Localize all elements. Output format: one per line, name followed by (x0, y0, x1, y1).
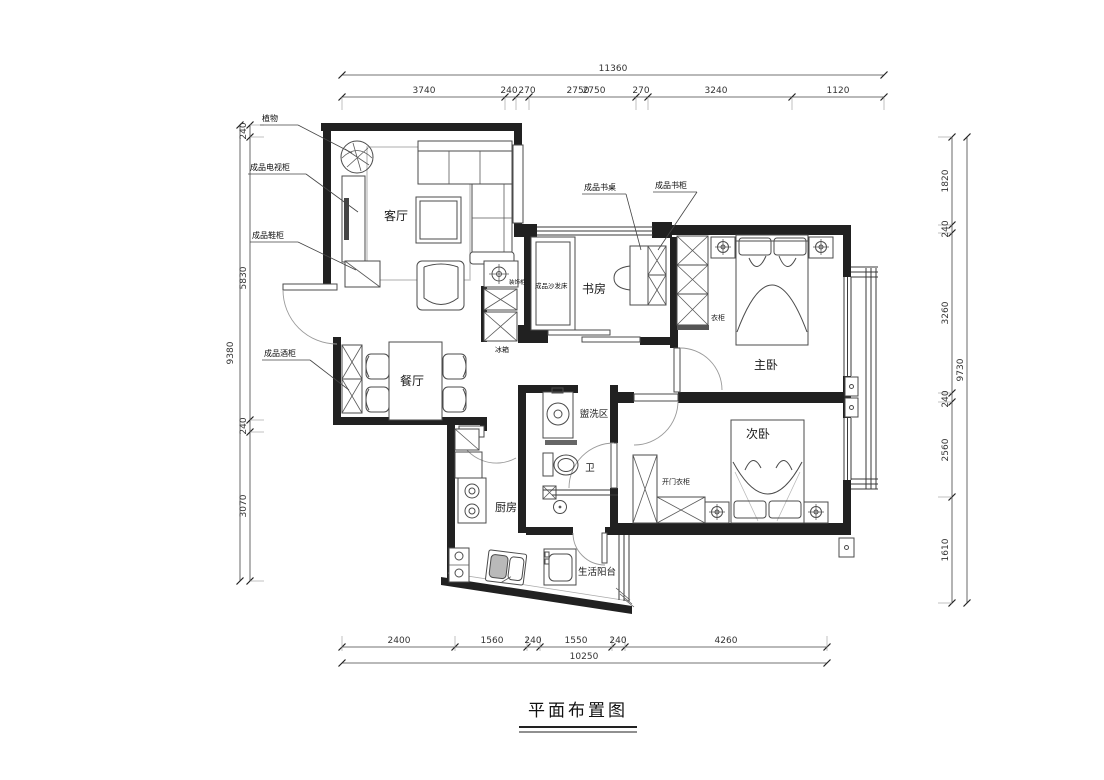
fridge (484, 312, 517, 341)
label-wardrobe: 衣柜 (711, 313, 725, 322)
dim-left-ticks (247, 122, 265, 585)
kitchen-sink (485, 550, 526, 585)
side-table (513, 145, 523, 223)
room-label-second: 次卧 (746, 427, 770, 441)
dimension-chain-bottom: 2400 1560 240 1550 240 4260 10250 (339, 636, 831, 667)
callout-tv-cabinet: 成品电视柜 (250, 162, 290, 172)
wet-zone-partition (543, 486, 618, 514)
dimension-chain-top: 11360 3740 240 270 2750 2750 270 3240 11… (339, 64, 888, 110)
toilet (543, 453, 578, 476)
callout-shoe-cabinet: 成品鞋柜 (252, 230, 284, 240)
drawing-title: 平面布置图 (528, 701, 628, 721)
room-label-living: 客厅 (384, 208, 408, 223)
coffee-table (416, 197, 461, 243)
dim-right-ticks (938, 134, 956, 607)
hall-cabinet (484, 289, 517, 310)
callout-desk: 成品书桌 (584, 182, 616, 192)
dim-left-seg: 5830 (239, 266, 249, 289)
label-sofa-bed: 成品沙发床 (535, 281, 568, 290)
master-door (674, 348, 722, 392)
entry-door (283, 284, 337, 344)
master-bed (736, 235, 808, 345)
shelf (545, 440, 577, 445)
dim-top-seg: 3740 (413, 86, 436, 96)
label-door-wardrobe: 开门衣柜 (662, 477, 690, 486)
second-bedroom-door (634, 394, 678, 445)
floor-plan-drawing: 11360 3740 240 270 2750 2750 270 3240 11… (0, 0, 1104, 780)
shoe-cabinet (345, 261, 380, 287)
dim-right-total: 9730 (956, 358, 966, 381)
dim-right-seg: 240 (941, 220, 951, 237)
dim-left-total: 9380 (226, 341, 236, 364)
dimension-chain-right: 1820 240 3260 240 2560 1610 9730 (938, 134, 971, 607)
armchair (417, 261, 464, 310)
master-wardrobe (677, 236, 709, 330)
callout-bookcase: 成品书柜 (655, 180, 687, 190)
plant-symbol (341, 141, 373, 173)
dim-bottom-seg: 4260 (715, 636, 738, 646)
dim-right-seg: 240 (941, 390, 951, 407)
dim-left-seg: 240 (239, 417, 249, 434)
wine-cabinet (342, 345, 362, 413)
floor-plan-page: 11360 3740 240 270 2750 2750 270 3240 11… (0, 0, 1104, 780)
dim-bottom-seg: 2400 (388, 636, 411, 646)
dim-right-seg: 2560 (941, 438, 951, 461)
room-label-dining: 餐厅 (400, 373, 424, 388)
room-label-study: 书房 (582, 281, 606, 296)
window-living-balcony (616, 535, 634, 607)
dim-top-seg: 2750 (583, 86, 606, 96)
callout-wine-cabinet: 成品酒柜 (264, 348, 296, 358)
dim-top-seg: 240 (500, 86, 517, 96)
dim-top-total: 11360 (599, 64, 628, 74)
tv-cabinet (342, 176, 365, 262)
dim-bottom-seg: 1560 (481, 636, 504, 646)
room-label-balcony: 生活阳台 (578, 566, 616, 578)
desk (614, 246, 648, 305)
tv-screen (344, 198, 349, 240)
room-label-wash: 盥洗区 (580, 408, 609, 420)
dim-left-seg: 3070 (239, 494, 249, 517)
dimension-chain-left: 9380 240 5830 240 3070 (226, 122, 264, 585)
dim-top-seg: 270 (518, 86, 535, 96)
window-second-balcony (844, 418, 851, 480)
dim-right-seg: 1820 (941, 169, 951, 192)
dim-bottom-total: 10250 (570, 652, 599, 662)
dim-top-seg: 3240 (705, 86, 728, 96)
washbasin (543, 388, 577, 445)
label-fridge: 冰箱 (495, 345, 509, 354)
label-deco-cabinet: 装饰柜 (509, 278, 526, 286)
callout-plant: 植物 (262, 113, 278, 123)
second-wardrobe (633, 455, 705, 523)
study-sliding-door (548, 330, 640, 342)
dim-top-seg: 1120 (827, 86, 850, 96)
bookcase (648, 246, 666, 305)
dim-bottom-seg: 1550 (565, 636, 588, 646)
dim-top-seg: 270 (632, 86, 649, 96)
room-label-kitchen: 厨房 (495, 501, 517, 514)
title-block: 平面布置图 (519, 701, 637, 732)
dim-right-seg: 1610 (941, 538, 951, 561)
dim-right-seg: 3260 (941, 301, 951, 324)
washing-machine (544, 549, 576, 585)
room-label-master: 主卧 (754, 358, 778, 372)
window-master-balcony (844, 277, 851, 376)
desk-chair (614, 266, 630, 290)
dim-bottom-seg: 240 (524, 636, 541, 646)
stove (458, 478, 486, 523)
room-label-wc: 卫 (585, 463, 595, 474)
dim-left-seg: 240 (239, 122, 249, 139)
balcony-door (573, 533, 607, 565)
dim-bottom-seg: 240 (609, 636, 626, 646)
